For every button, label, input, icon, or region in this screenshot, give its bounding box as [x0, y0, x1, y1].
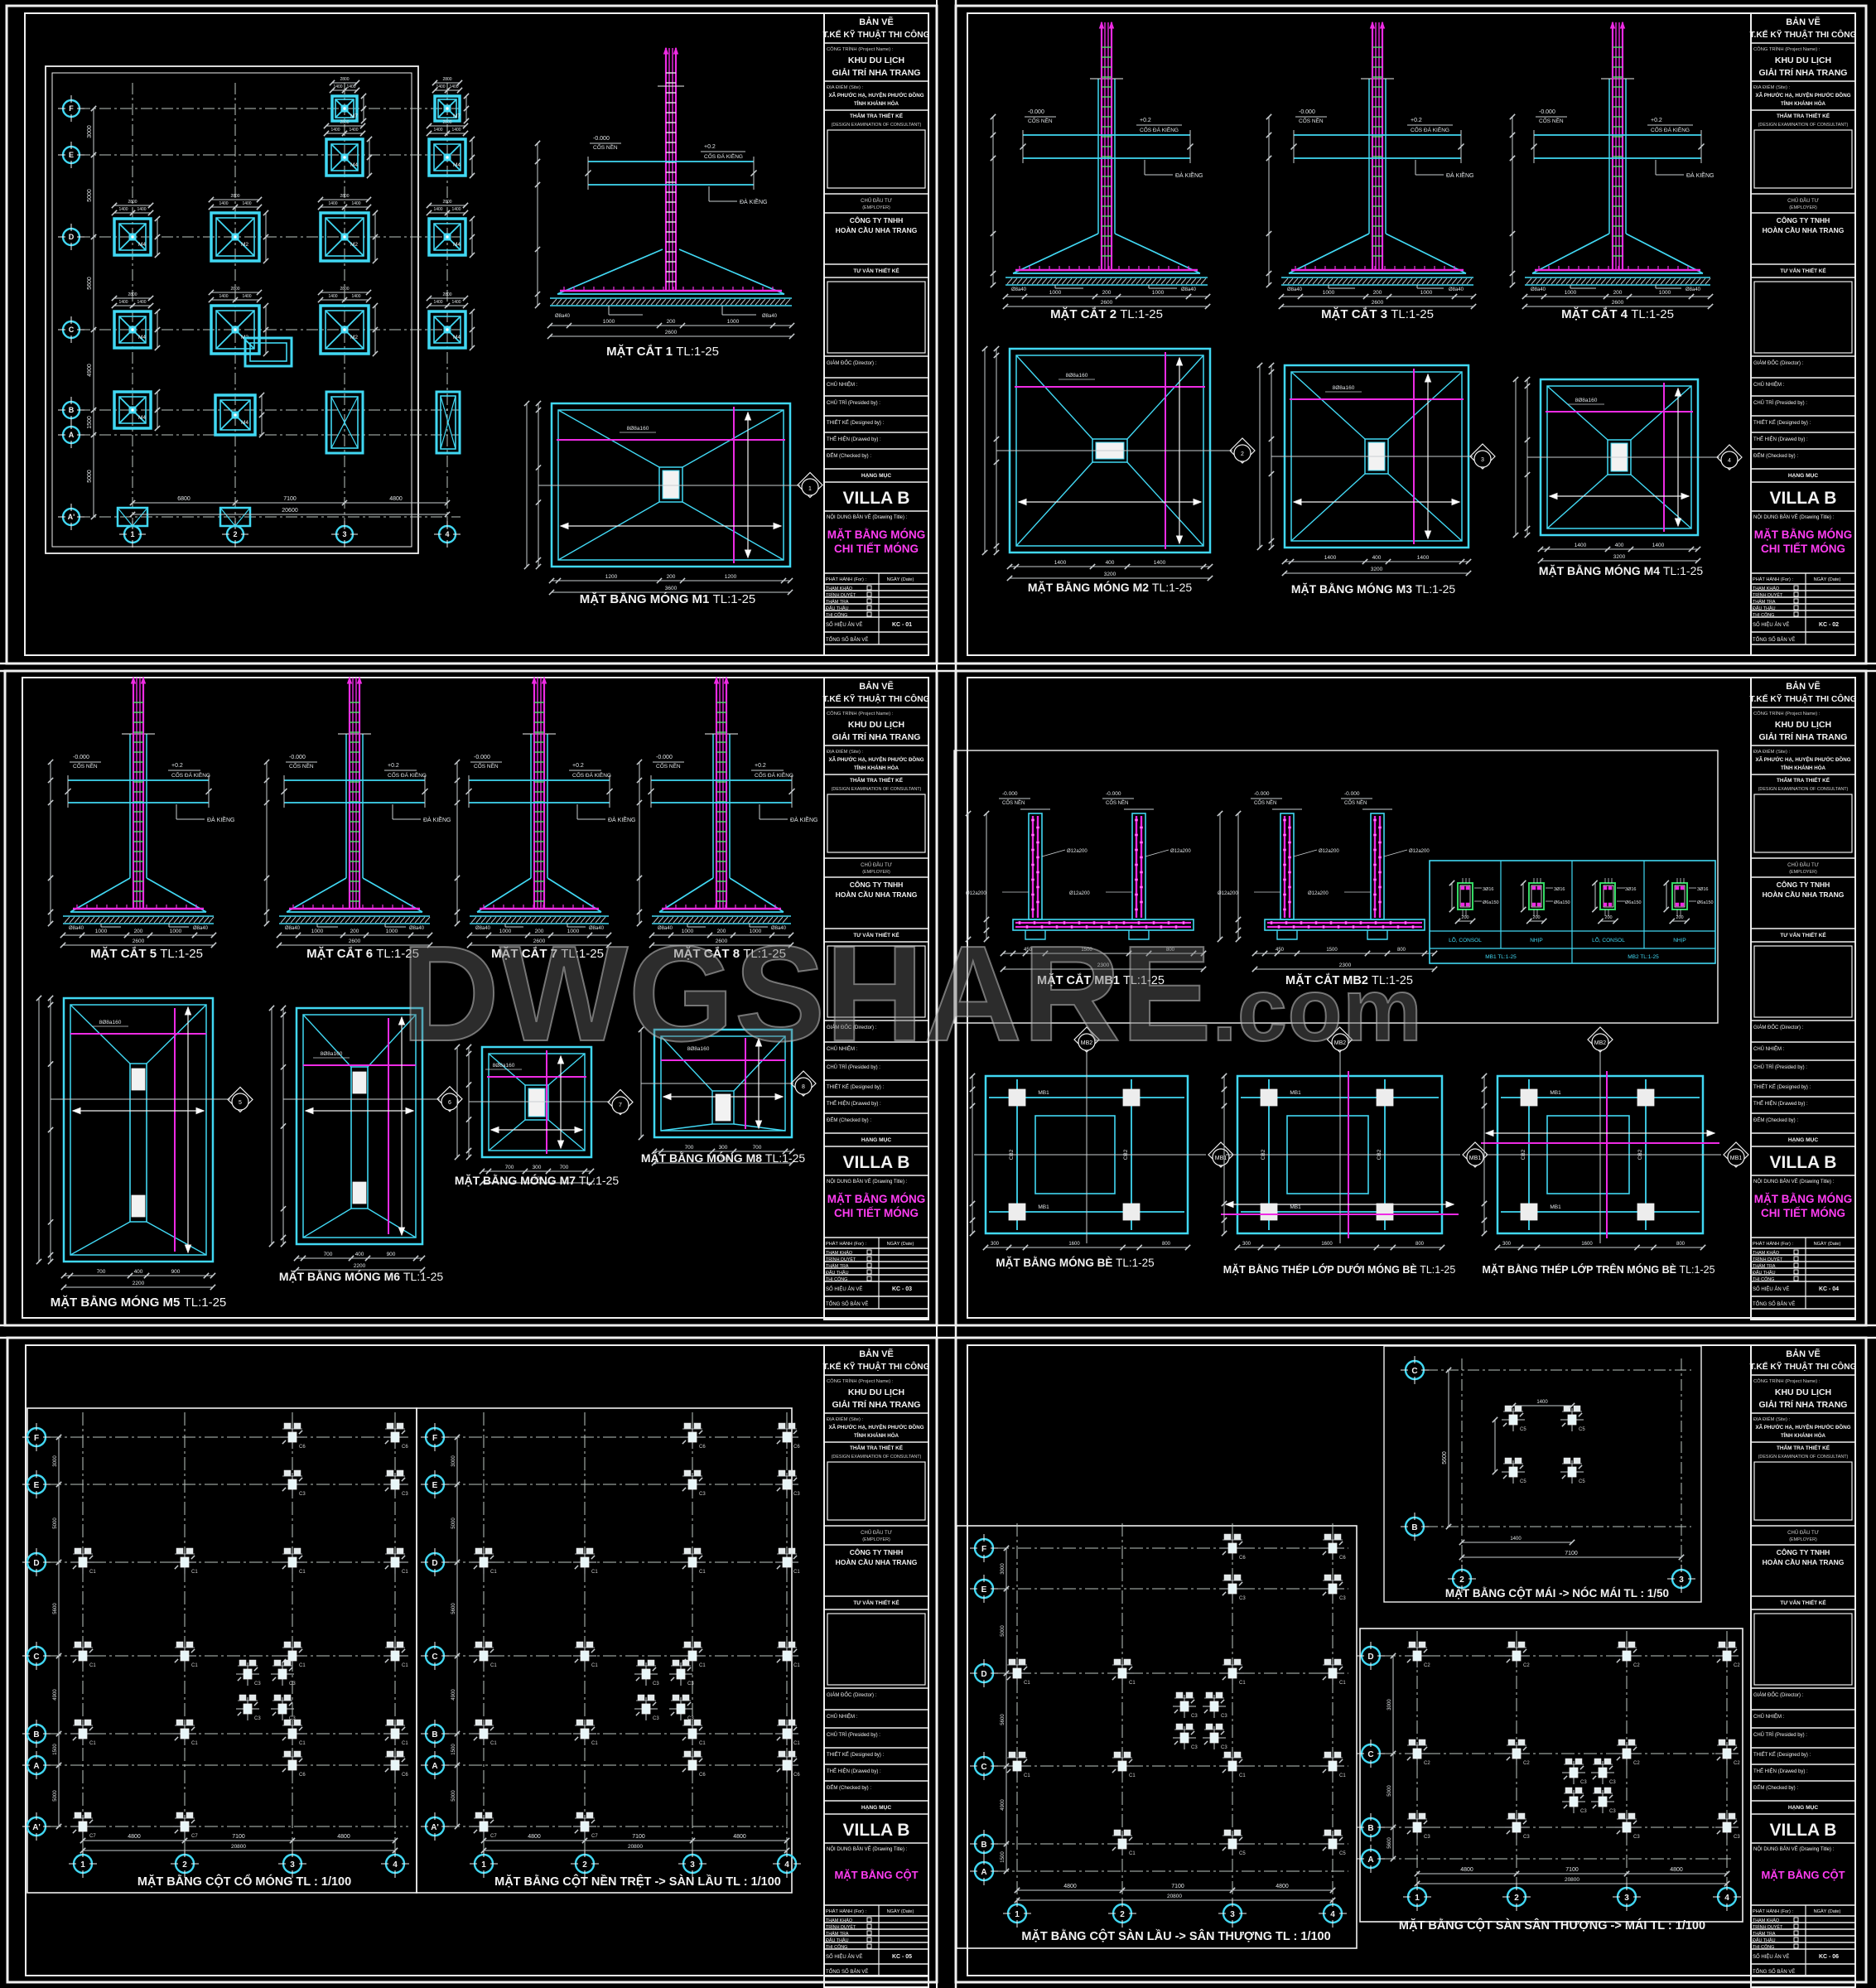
svg-text:1600: 1600: [1321, 1242, 1333, 1247]
svg-text:1400: 1400: [137, 300, 146, 305]
svg-text:1400: 1400: [328, 201, 337, 206]
svg-text:8Ø8a160: 8Ø8a160: [1333, 385, 1355, 391]
svg-text:CÔNG TY TNHH: CÔNG TY TNHH: [850, 215, 904, 224]
svg-text:(DESIGN EXAMINATION OF CONSULT: (DESIGN EXAMINATION OF CONSULTANT): [1758, 1455, 1849, 1460]
svg-text:Ø12a200: Ø12a200: [1069, 891, 1090, 896]
svg-text:C3: C3: [289, 1716, 296, 1721]
svg-text:2: 2: [1514, 1894, 1519, 1903]
svg-text:1500: 1500: [87, 416, 93, 429]
svg-text:PHÁT HÀNH (For) :: PHÁT HÀNH (For) :: [826, 1241, 866, 1247]
svg-text:C: C: [1367, 1750, 1373, 1759]
svg-text:1: 1: [130, 530, 134, 538]
svg-text:CB2: CB2: [1521, 1149, 1526, 1160]
svg-text:3000: 3000: [1001, 1563, 1006, 1575]
svg-text:HẠNG MỤC: HẠNG MỤC: [861, 473, 892, 479]
svg-text:C5: C5: [1239, 1851, 1246, 1856]
svg-text:B: B: [432, 1730, 437, 1739]
svg-text:HẠNG MỤC: HẠNG MỤC: [861, 1805, 892, 1811]
svg-text:CHỦ TRÌ (Presided by) :: CHỦ TRÌ (Presided by) :: [1753, 1732, 1807, 1738]
svg-text:C1: C1: [793, 1741, 800, 1746]
svg-text:C3: C3: [1523, 1835, 1530, 1840]
svg-text:BẢN VẼ: BẢN VẼ: [1786, 681, 1821, 692]
svg-text:C1: C1: [1239, 1773, 1246, 1778]
svg-text:T.KẾ KỸ THUẬT THI CÔNG: T.KẾ KỸ THUẬT THI CÔNG: [1749, 693, 1856, 704]
svg-text:A: A: [33, 1762, 39, 1771]
svg-text:1400: 1400: [449, 84, 458, 89]
svg-text:ĐẾM (Checked by) :: ĐẾM (Checked by) :: [827, 453, 871, 459]
svg-text:4900: 4900: [1001, 1799, 1006, 1811]
svg-text:C3: C3: [1239, 1596, 1246, 1601]
svg-text:C7: C7: [591, 1834, 598, 1839]
svg-text:HẠNG MỤC: HẠNG MỤC: [861, 1137, 892, 1143]
svg-text:1000: 1000: [170, 929, 182, 934]
svg-text:M4: M4: [138, 335, 146, 340]
svg-text:4: 4: [1728, 458, 1731, 464]
svg-text:C: C: [1411, 1367, 1417, 1376]
svg-text:BẢN VẼ: BẢN VẼ: [1786, 17, 1821, 27]
svg-text:XÃ PHƯỚC HẠ, HUYỆN PHƯỚC ĐỒNG: XÃ PHƯỚC HẠ, HUYỆN PHƯỚC ĐỒNG: [828, 1424, 924, 1431]
svg-text:4800: 4800: [733, 1834, 746, 1840]
svg-text:NGÀY (Date): NGÀY (Date): [887, 577, 914, 582]
svg-text:1400: 1400: [1154, 560, 1166, 566]
svg-text:+0.2: +0.2: [171, 763, 183, 769]
svg-text:5600: 5600: [451, 1603, 456, 1614]
svg-text:+0.2: +0.2: [572, 763, 584, 769]
svg-text:NỘI DUNG BẢN VẼ (Drawing Title: NỘI DUNG BẢN VẼ (Drawing Title) :: [827, 1179, 908, 1185]
svg-text:KHU DU LỊCH: KHU DU LỊCH: [848, 1387, 904, 1397]
svg-text:C1: C1: [402, 1663, 408, 1668]
svg-text:TỈNH KHÁNH HÒA: TỈNH KHÁNH HÒA: [1781, 765, 1825, 771]
svg-text:GIẢI TRÍ NHA TRANG: GIẢI TRÍ NHA TRANG: [832, 1399, 921, 1410]
svg-text:CÔNG TRÌNH (Project Name) :: CÔNG TRÌNH (Project Name) :: [827, 711, 894, 717]
svg-text:MẶT BẰNG CỘT CỔ MÓNG TL : 1/10: MẶT BẰNG CỘT CỔ MÓNG TL : 1/100: [137, 1874, 351, 1889]
svg-text:C2: C2: [1633, 1663, 1640, 1668]
svg-text:GIÁM ĐỐC (Director) :: GIÁM ĐỐC (Director) :: [1753, 1692, 1804, 1698]
svg-text:C3: C3: [254, 1682, 261, 1686]
svg-text:E: E: [981, 1585, 987, 1595]
svg-text:C3: C3: [1633, 1835, 1640, 1840]
svg-text:1400: 1400: [433, 128, 442, 133]
svg-text:ĐẾM (Checked by) :: ĐẾM (Checked by) :: [1753, 1785, 1798, 1791]
svg-text:C1: C1: [1129, 1773, 1136, 1778]
svg-text:NỘI DUNG BẢN VẼ (Drawing Title: NỘI DUNG BẢN VẼ (Drawing Title) :: [1753, 514, 1835, 520]
svg-text:C1: C1: [591, 1663, 598, 1668]
svg-text:3Ø16: 3Ø16: [1554, 887, 1565, 892]
svg-text:C1: C1: [191, 1570, 198, 1575]
svg-text:Ø8a40: Ø8a40: [193, 926, 209, 931]
svg-text:CHỦ NHIỆM :: CHỦ NHIỆM :: [827, 1713, 858, 1720]
svg-text:200: 200: [1373, 290, 1382, 296]
svg-text:CỐS NỀN: CỐS NỀN: [1254, 800, 1276, 806]
svg-text:CHI TIẾT MÓNG: CHI TIẾT MÓNG: [1761, 1207, 1845, 1219]
svg-text:CÔNG TY TNHH: CÔNG TY TNHH: [1777, 215, 1830, 224]
svg-text:KC - 06: KC - 06: [1819, 1954, 1839, 1960]
svg-text:1400: 1400: [1324, 555, 1337, 561]
svg-text:CỐS NỀN: CỐS NỀN: [1106, 800, 1128, 806]
svg-text:3200: 3200: [1613, 554, 1626, 560]
svg-text:1200: 1200: [725, 574, 737, 580]
svg-text:ĐẾM (Checked by) :: ĐẾM (Checked by) :: [827, 1785, 871, 1791]
svg-text:8Ø8a160: 8Ø8a160: [627, 426, 649, 432]
svg-text:C1: C1: [699, 1741, 706, 1746]
svg-text:8: 8: [802, 1084, 805, 1090]
svg-text:7100: 7100: [283, 496, 297, 502]
svg-text:MB2 TL:1-25: MB2 TL:1-25: [1628, 954, 1659, 960]
svg-text:PHÁT HÀNH (For) :: PHÁT HÀNH (For) :: [826, 1908, 866, 1914]
svg-text:5000: 5000: [1387, 1785, 1392, 1797]
svg-text:MẶT CẮT 1 TL:1-25: MẶT CẮT 1 TL:1-25: [606, 344, 719, 359]
svg-text:C2: C2: [1734, 1761, 1740, 1766]
svg-text:E: E: [34, 1481, 40, 1490]
svg-text:5000: 5000: [53, 1790, 58, 1802]
svg-text:C3: C3: [699, 1492, 706, 1497]
svg-text:C: C: [981, 1763, 986, 1772]
svg-text:1400: 1400: [118, 300, 128, 305]
svg-text:800: 800: [1415, 1242, 1425, 1247]
svg-text:300: 300: [1502, 1242, 1512, 1247]
svg-text:C1: C1: [191, 1663, 198, 1668]
svg-text:M2: M2: [350, 335, 358, 340]
svg-text:D: D: [69, 233, 75, 241]
svg-text:300: 300: [1242, 1242, 1251, 1247]
svg-text:C1: C1: [1129, 1681, 1136, 1686]
svg-text:NGÀY (Date): NGÀY (Date): [1814, 1908, 1841, 1914]
svg-text:NHỊP: NHỊP: [1530, 938, 1543, 943]
svg-text:ĐỊA ĐIỂM (Site) :: ĐỊA ĐIỂM (Site) :: [827, 84, 864, 90]
svg-text:CHỦ NHIỆM :: CHỦ NHIỆM :: [1753, 381, 1785, 388]
svg-text:CHỦ NHIỆM :: CHỦ NHIỆM :: [827, 381, 858, 388]
svg-text:-0.000: -0.000: [73, 755, 89, 760]
svg-text:C3: C3: [402, 1492, 408, 1497]
svg-text:D: D: [981, 1670, 986, 1679]
svg-text:-0.000: -0.000: [656, 755, 673, 760]
svg-text:3: 3: [1679, 1575, 1684, 1585]
svg-text:4800: 4800: [1670, 1867, 1683, 1873]
svg-text:Ø8a40: Ø8a40: [1287, 287, 1303, 292]
svg-text:T.KẾ KỸ THUẬT THI CÔNG: T.KẾ KỸ THUẬT THI CÔNG: [1749, 29, 1856, 40]
svg-text:1: 1: [80, 1860, 85, 1870]
svg-text:MẶT CẮT 4 TL:1-25: MẶT CẮT 4 TL:1-25: [1561, 306, 1674, 321]
svg-text:KHU DU LỊCH: KHU DU LỊCH: [848, 55, 904, 65]
svg-text:VILLA B: VILLA B: [1770, 1821, 1837, 1840]
svg-text:C3: C3: [1221, 1714, 1227, 1719]
svg-text:700: 700: [97, 1269, 106, 1275]
svg-text:C3: C3: [1191, 1745, 1198, 1750]
svg-text:C1: C1: [490, 1741, 497, 1746]
svg-text:3200: 3200: [1371, 567, 1383, 572]
svg-text:SỐ HIỆU ẢN VẼ: SỐ HIỆU ẢN VẼ: [826, 1953, 862, 1960]
svg-text:Ø6a150: Ø6a150: [1625, 900, 1642, 905]
svg-text:3: 3: [1481, 457, 1484, 463]
svg-text:2800: 2800: [442, 200, 451, 205]
svg-text:1: 1: [1015, 1910, 1020, 1919]
svg-text:VILLA B: VILLA B: [843, 489, 910, 508]
svg-text:MB1: MB1: [1730, 1156, 1743, 1161]
svg-text:400: 400: [355, 1252, 364, 1257]
svg-text:GIẢI TRÍ NHA TRANG: GIẢI TRÍ NHA TRANG: [1759, 67, 1848, 78]
svg-text:CB2: CB2: [1009, 1149, 1015, 1160]
svg-text:HẠNG MỤC: HẠNG MỤC: [1788, 1137, 1819, 1143]
svg-text:1400: 1400: [219, 201, 228, 206]
svg-text:1400: 1400: [436, 84, 445, 89]
svg-text:MẶT BẰNG MÓNG M4 TL:1-25: MẶT BẰNG MÓNG M4 TL:1-25: [1539, 563, 1704, 577]
svg-text:3000: 3000: [87, 125, 93, 138]
svg-text:2600: 2600: [1612, 300, 1624, 306]
svg-text:MẶT BẰNG MÓNG M2 TL:1-25: MẶT BẰNG MÓNG M2 TL:1-25: [1028, 580, 1193, 594]
svg-text:A': A': [32, 1823, 41, 1832]
svg-text:7100: 7100: [1171, 1884, 1184, 1889]
svg-text:5000: 5000: [87, 189, 93, 202]
svg-text:Ø8a40: Ø8a40: [762, 314, 778, 319]
svg-text:C5: C5: [1579, 1427, 1585, 1432]
svg-text:C6: C6: [402, 1773, 408, 1778]
svg-text:KC - 03: KC - 03: [892, 1286, 912, 1292]
svg-text:2800: 2800: [340, 120, 349, 125]
svg-text:1400: 1400: [346, 84, 355, 89]
svg-text:5000: 5000: [451, 1518, 456, 1529]
svg-text:C1: C1: [402, 1570, 408, 1575]
svg-text:KHU DU LỊCH: KHU DU LỊCH: [1775, 55, 1831, 65]
svg-text:2800: 2800: [128, 292, 137, 297]
svg-text:1400: 1400: [1652, 543, 1665, 548]
svg-text:700: 700: [324, 1252, 333, 1257]
svg-text:CHI TIẾT MÓNG: CHI TIẾT MÓNG: [834, 1207, 919, 1219]
svg-text:CÔNG TRÌNH (Project Name) :: CÔNG TRÌNH (Project Name) :: [827, 1378, 894, 1384]
svg-text:20800: 20800: [1167, 1894, 1182, 1899]
svg-text:200: 200: [1532, 915, 1540, 920]
svg-text:200: 200: [667, 319, 676, 325]
svg-text:Ø8a40: Ø8a40: [1531, 287, 1546, 292]
svg-text:Ø6a150: Ø6a150: [1483, 900, 1499, 905]
svg-text:C3: C3: [299, 1492, 306, 1497]
svg-text:C6: C6: [299, 1773, 306, 1778]
svg-text:MB2: MB2: [1594, 1040, 1607, 1046]
svg-text:XÃ PHƯỚC HẠ, HUYỆN PHƯỚC ĐỒNG: XÃ PHƯỚC HẠ, HUYỆN PHƯỚC ĐỒNG: [1755, 92, 1850, 99]
svg-text:LỖ, CONSOL: LỖ, CONSOL: [1592, 936, 1625, 943]
svg-text:C3: C3: [1734, 1835, 1740, 1840]
svg-text:1: 1: [481, 1860, 486, 1870]
svg-text:MẶT BẰNG CỘT MÁI -> NÓC MÁI TL: MẶT BẰNG CỘT MÁI -> NÓC MÁI TL : 1/50: [1445, 1587, 1669, 1600]
svg-text:3Ø16: 3Ø16: [1625, 887, 1636, 892]
svg-text:(EMPLOYER): (EMPLOYER): [1789, 870, 1817, 875]
svg-text:900: 900: [171, 1269, 181, 1275]
svg-text:+0.2: +0.2: [704, 144, 716, 150]
svg-text:-0.000: -0.000: [1002, 791, 1018, 797]
svg-text:NỘI DUNG BẢN VẼ (Drawing Title: NỘI DUNG BẢN VẼ (Drawing Title) :: [827, 1846, 908, 1852]
svg-text:CÔNG TRÌNH (Project Name) :: CÔNG TRÌNH (Project Name) :: [1753, 711, 1821, 717]
svg-text:B: B: [1411, 1523, 1417, 1532]
svg-text:MẶT BẰNG MÓNG: MẶT BẰNG MÓNG: [1754, 528, 1853, 541]
svg-text:2800: 2800: [442, 77, 451, 82]
svg-text:B: B: [981, 1841, 986, 1850]
svg-text:2600: 2600: [1101, 300, 1113, 306]
svg-text:C2: C2: [1523, 1761, 1530, 1766]
svg-text:MẶT CẮT 3 TL:1-25: MẶT CẮT 3 TL:1-25: [1321, 306, 1434, 321]
svg-text:300: 300: [719, 1145, 728, 1151]
svg-text:CÔNG TY TNHH: CÔNG TY TNHH: [1777, 880, 1830, 889]
svg-text:200: 200: [1461, 915, 1468, 920]
svg-text:ĐỊA ĐIỂM (Site) :: ĐỊA ĐIỂM (Site) :: [1753, 1416, 1791, 1422]
svg-text:THIẾT KẾ (Designed by) :: THIẾT KẾ (Designed by) :: [827, 1084, 885, 1090]
svg-text:1400: 1400: [1536, 1400, 1548, 1405]
svg-text:20600: 20600: [282, 508, 298, 514]
svg-text:M7: M7: [453, 113, 461, 119]
svg-text:C1: C1: [1129, 1851, 1136, 1856]
svg-text:3000: 3000: [451, 1455, 456, 1467]
svg-text:SỐ HIỆU ẢN VẼ: SỐ HIỆU ẢN VẼ: [1753, 1953, 1789, 1960]
svg-text:4: 4: [393, 1860, 398, 1870]
svg-text:D: D: [432, 1559, 437, 1568]
svg-text:CHỦ ĐẦU TƯ: CHỦ ĐẦU TƯ: [1787, 862, 1819, 868]
svg-text:C3: C3: [1609, 1780, 1616, 1785]
svg-text:LỖ, CONSOL: LỖ, CONSOL: [1449, 936, 1482, 943]
svg-text:-0.000: -0.000: [1028, 109, 1044, 115]
svg-text:C1: C1: [490, 1570, 497, 1575]
svg-text:GIÁM ĐỐC (Director) :: GIÁM ĐỐC (Director) :: [1753, 360, 1804, 366]
svg-text:7100: 7100: [232, 1834, 245, 1840]
svg-text:M2: M2: [350, 242, 358, 248]
svg-text:TỈNH KHÁNH HÒA: TỈNH KHÁNH HÒA: [854, 1432, 899, 1439]
svg-text:NHỊP: NHỊP: [1673, 938, 1686, 943]
svg-text:4800: 4800: [528, 1834, 541, 1840]
svg-text:(DESIGN EXAMINATION OF CONSULT: (DESIGN EXAMINATION OF CONSULTANT): [832, 1455, 922, 1460]
svg-text:3: 3: [690, 1860, 695, 1870]
svg-text:Ø12a200: Ø12a200: [1319, 849, 1339, 854]
svg-text:CB2: CB2: [1123, 1149, 1129, 1160]
svg-text:3000: 3000: [53, 1455, 58, 1467]
svg-text:2600: 2600: [1372, 300, 1384, 306]
svg-text:700: 700: [505, 1165, 514, 1170]
svg-text:TỔNG SỐ BẢN VẼ: TỔNG SỐ BẢN VẼ: [826, 1301, 868, 1307]
svg-text:MẶT BẰNG CỘT SÀN LẦU -> SÂN TH: MẶT BẰNG CỘT SÀN LẦU -> SÂN THƯỢNG TL : …: [1021, 1928, 1330, 1943]
svg-text:1600: 1600: [1068, 1242, 1080, 1247]
svg-text:2800: 2800: [230, 287, 239, 292]
svg-text:800: 800: [1162, 1242, 1171, 1247]
svg-text:NGÀY (Date): NGÀY (Date): [1814, 577, 1841, 582]
svg-text:CHỦ TRÌ (Presided by) :: CHỦ TRÌ (Presided by) :: [1753, 400, 1807, 406]
svg-text:-0.000: -0.000: [593, 136, 610, 142]
svg-text:1000: 1000: [386, 929, 398, 934]
svg-text:T.KẾ KỸ THUẬT THI CÔNG: T.KẾ KỸ THUẬT THI CÔNG: [822, 693, 929, 704]
svg-text:Ø8a40: Ø8a40: [1449, 287, 1464, 292]
svg-text:M4: M4: [138, 415, 146, 421]
svg-text:F: F: [432, 1434, 437, 1443]
svg-text:PHÁT HÀNH (For) :: PHÁT HÀNH (For) :: [1753, 1908, 1793, 1914]
svg-text:C3: C3: [687, 1682, 694, 1686]
svg-text:A: A: [69, 431, 75, 439]
svg-text:CHI TIẾT MÓNG: CHI TIẾT MÓNG: [834, 543, 919, 555]
svg-text:1400: 1400: [451, 207, 461, 212]
svg-text:MB1: MB1: [1038, 1090, 1049, 1096]
svg-text:A': A': [68, 513, 75, 521]
svg-text:2: 2: [1241, 451, 1244, 457]
svg-text:MẶT BẰNG MÓNG M3 TL:1-25: MẶT BẰNG MÓNG M3 TL:1-25: [1291, 581, 1456, 596]
svg-text:C3: C3: [1339, 1596, 1346, 1601]
svg-text:KC - 05: KC - 05: [892, 1954, 912, 1960]
svg-text:THỂ HIỆN (Drawed by) :: THỂ HIỆN (Drawed by) :: [827, 1768, 881, 1774]
svg-text:200: 200: [134, 929, 143, 934]
svg-text:1400: 1400: [433, 300, 442, 305]
svg-text:(EMPLOYER): (EMPLOYER): [862, 870, 890, 875]
svg-text:VILLA B: VILLA B: [843, 1153, 910, 1172]
svg-text:1000: 1000: [311, 929, 324, 934]
svg-text:(EMPLOYER): (EMPLOYER): [1789, 205, 1817, 210]
svg-text:F: F: [34, 1434, 39, 1443]
svg-text:CB2: CB2: [1637, 1149, 1643, 1160]
svg-text:M4: M4: [453, 162, 461, 168]
svg-text:C3: C3: [793, 1492, 800, 1497]
svg-text:MẶT BẰNG CỘT: MẶT BẰNG CỘT: [834, 1869, 918, 1881]
svg-text:1400: 1400: [451, 300, 461, 305]
svg-text:GIẢI TRÍ NHA TRANG: GIẢI TRÍ NHA TRANG: [832, 731, 921, 742]
svg-text:GIÁM ĐỐC (Director) :: GIÁM ĐỐC (Director) :: [1753, 1025, 1804, 1030]
svg-text:KHU DU LỊCH: KHU DU LỊCH: [1775, 1387, 1831, 1397]
svg-text:THIẾT KẾ (Designed by) :: THIẾT KẾ (Designed by) :: [1753, 1752, 1811, 1758]
svg-text:4: 4: [784, 1860, 789, 1870]
svg-text:C1: C1: [1339, 1773, 1346, 1778]
svg-text:TỔNG SỐ BẢN VẼ: TỔNG SỐ BẢN VẼ: [1753, 1301, 1795, 1307]
svg-text:300: 300: [533, 1165, 542, 1170]
svg-text:1200: 1200: [605, 574, 618, 580]
svg-text:2: 2: [233, 530, 237, 538]
svg-text:C1: C1: [699, 1570, 706, 1575]
svg-text:BẢN VẼ: BẢN VẼ: [859, 17, 894, 27]
svg-text:800: 800: [1676, 1242, 1686, 1247]
svg-text:2800: 2800: [442, 120, 451, 125]
svg-text:Ø12a200: Ø12a200: [1067, 849, 1088, 854]
svg-text:1000: 1000: [1049, 290, 1062, 296]
svg-text:5600: 5600: [1001, 1714, 1006, 1725]
svg-text:HOÀN CẦU NHA TRANG: HOÀN CẦU NHA TRANG: [1763, 890, 1845, 899]
svg-text:C7: C7: [490, 1834, 497, 1839]
svg-text:MẶT BẰNG MÓNG: MẶT BẰNG MÓNG: [1754, 1193, 1853, 1205]
svg-text:NGÀY (Date): NGÀY (Date): [887, 1908, 914, 1914]
svg-text:A: A: [432, 1762, 437, 1771]
svg-text:TỈNH KHÁNH HÒA: TỈNH KHÁNH HÒA: [1781, 1432, 1825, 1439]
svg-text:2800: 2800: [340, 194, 349, 199]
svg-text:KC - 04: KC - 04: [1819, 1286, 1839, 1292]
svg-text:1400: 1400: [330, 128, 340, 133]
svg-text:C3: C3: [289, 1682, 296, 1686]
svg-text:(EMPLOYER): (EMPLOYER): [1789, 1537, 1817, 1542]
svg-text:MẶT BẰNG MÓNG: MẶT BẰNG MÓNG: [827, 528, 926, 541]
svg-text:ĐỊA ĐIỂM (Site) :: ĐỊA ĐIỂM (Site) :: [1753, 84, 1791, 90]
svg-text:3200: 3200: [1104, 572, 1116, 577]
svg-text:C3: C3: [1580, 1780, 1587, 1785]
svg-text:HOÀN CẦU NHA TRANG: HOÀN CẦU NHA TRANG: [836, 1558, 918, 1566]
svg-text:M4: M4: [241, 420, 248, 426]
svg-text:+0.2: +0.2: [1411, 118, 1422, 123]
svg-text:C1: C1: [591, 1741, 598, 1746]
svg-text:1400: 1400: [351, 201, 360, 206]
svg-text:5000: 5000: [53, 1518, 58, 1529]
svg-text:Ø12a200: Ø12a200: [1170, 849, 1191, 854]
svg-text:THỂ HIỆN (Drawed by) :: THỂ HIỆN (Drawed by) :: [827, 1100, 881, 1107]
svg-text:CHỦ ĐẦU TƯ: CHỦ ĐẦU TƯ: [861, 1530, 892, 1536]
svg-text:1400: 1400: [1417, 555, 1430, 561]
svg-text:450: 450: [1276, 948, 1285, 953]
svg-text:700: 700: [560, 1165, 569, 1170]
svg-text:Ø8a40: Ø8a40: [1011, 287, 1027, 292]
svg-text:C1: C1: [89, 1741, 96, 1746]
svg-text:+0.2: +0.2: [1651, 118, 1662, 123]
svg-text:2800: 2800: [442, 292, 451, 297]
svg-text:C3: C3: [1580, 1809, 1587, 1814]
svg-text:CỐS NỀN: CỐS NỀN: [1002, 800, 1025, 806]
svg-text:Ø12a200: Ø12a200: [1409, 849, 1430, 854]
svg-text:7100: 7100: [632, 1834, 645, 1840]
svg-text:Ø8a40: Ø8a40: [69, 926, 84, 931]
